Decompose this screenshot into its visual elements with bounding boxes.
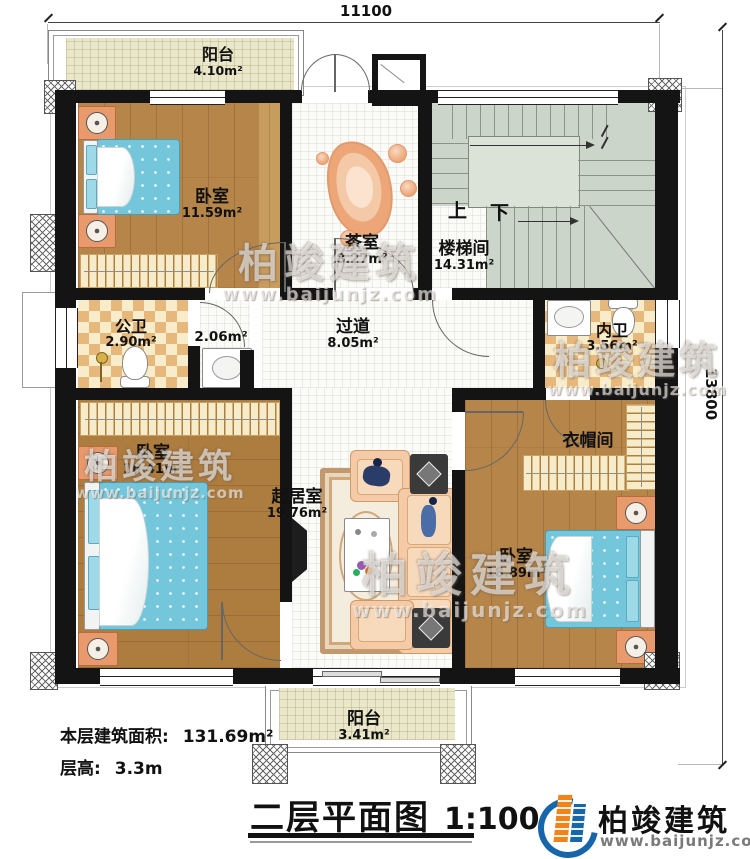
wall-segment	[280, 288, 333, 300]
lamp-icon	[87, 452, 109, 474]
entry-door-arc	[335, 54, 370, 91]
room-name: 内卫	[586, 322, 637, 340]
wall-segment	[620, 668, 680, 684]
table-lamp-icon	[416, 461, 441, 486]
room-area: 8.27m²	[336, 253, 387, 268]
room-name: 卧室	[182, 188, 242, 207]
room-area: 3.56m²	[586, 340, 637, 355]
wall-segment	[465, 388, 546, 400]
side-table	[410, 454, 448, 494]
wardrobe	[626, 404, 656, 490]
wall-segment	[240, 350, 254, 388]
person-body	[421, 505, 436, 537]
room-label-ensuite-bath: 内卫 3.56m²	[586, 322, 637, 354]
lamp-icon	[87, 638, 109, 660]
room-label-stairwell: 楼梯间 14.31m²	[434, 240, 494, 274]
wardrobe-rod	[85, 419, 275, 420]
rug-dot	[388, 144, 407, 163]
bench-wardrobe	[80, 254, 218, 288]
rug-dot	[316, 152, 329, 165]
stair-direction-line	[518, 221, 572, 222]
floor-plan-canvas: 11100 13800 阳台 4.10m² 上 下	[0, 0, 750, 859]
wall-segment	[368, 90, 438, 103]
wall-segment	[440, 668, 515, 684]
stair-down-label: 下	[490, 198, 509, 225]
wardrobe-rod	[641, 407, 642, 488]
extension-line	[678, 764, 722, 765]
floor-drain	[96, 352, 108, 364]
room-area: 14.31m²	[434, 259, 494, 274]
wall-segment	[452, 388, 465, 412]
side-table	[412, 608, 450, 648]
coffee-table	[344, 518, 390, 592]
floor-area-value: 131.69m²	[183, 727, 274, 747]
stair-treads-upper	[452, 103, 620, 139]
entry-door-arc	[301, 54, 336, 91]
door-leaf	[221, 602, 223, 660]
wall-segment	[55, 90, 76, 308]
room-label-balcony-top: 阳台 4.10m²	[193, 46, 242, 78]
wall-segment	[655, 348, 678, 684]
room-label-living-room: 起居室 19.76m²	[267, 488, 327, 522]
flowers	[353, 569, 360, 576]
toilet-bowl	[122, 346, 148, 380]
room-name: 衣帽间	[563, 432, 614, 451]
stair-arrow-down	[570, 217, 579, 225]
nightstand	[78, 446, 118, 480]
wardrobe-rod	[526, 473, 627, 474]
title-underline	[248, 833, 474, 838]
wall-segment	[452, 288, 655, 300]
right-dimension-label: 13800	[702, 368, 720, 438]
window	[515, 668, 620, 686]
room-label-bedroom-left: 卧室 16.41m²	[123, 444, 183, 478]
room-area: 19.76m²	[267, 507, 327, 522]
room-area: 16.41m²	[123, 463, 183, 478]
room-name: 阳台	[338, 710, 389, 729]
room-name: 公卫	[105, 318, 156, 336]
room-area: 2.90m²	[105, 336, 156, 351]
sink-basin	[212, 356, 242, 380]
logo-site-text: www.baijunjz.com	[600, 832, 750, 850]
room-name: 茶室	[336, 234, 387, 253]
wardrobe-rod	[84, 271, 215, 272]
sliding-door-panel	[380, 677, 440, 683]
window	[438, 90, 618, 105]
room-label-balcony-bottom: 阳台 3.41m²	[338, 710, 389, 744]
bed-pillow	[626, 580, 639, 622]
entry-door-leaf	[334, 54, 336, 92]
nightstand	[616, 496, 656, 530]
room-area: 4.10m²	[193, 64, 242, 78]
nightstand	[78, 106, 116, 140]
wall-segment	[233, 668, 313, 684]
lamp-icon	[625, 502, 647, 524]
bed-blanket	[97, 147, 135, 207]
drawing-scale: 1:100	[444, 802, 540, 837]
rug-dot	[400, 180, 417, 197]
window	[655, 300, 680, 348]
wall-segment	[55, 668, 100, 684]
table-item	[355, 529, 361, 535]
window	[150, 90, 225, 105]
stair-landing	[468, 136, 580, 208]
wall-segment	[418, 103, 432, 300]
armchair	[350, 600, 414, 650]
nightstand	[78, 214, 116, 248]
room-name: 楼梯间	[434, 240, 494, 259]
floor-drain	[596, 358, 607, 369]
wall-segment	[655, 90, 678, 300]
door-leaf	[465, 411, 523, 413]
drawing-title-block: 二层平面图 1:100	[250, 790, 540, 839]
extension-line	[47, 24, 48, 64]
room-name: 卧室	[486, 548, 546, 567]
lamp-icon	[86, 112, 108, 134]
floor-area-line: 本层建筑面积: 131.69m²	[60, 722, 274, 747]
wardrobe	[523, 455, 630, 491]
room-name: 过道	[327, 318, 378, 337]
floor-area-label: 本层建筑面积:	[60, 727, 169, 747]
nightstand	[78, 632, 118, 666]
room-label-bedroom-top: 卧室 11.59m²	[182, 188, 242, 222]
wall-segment	[55, 388, 280, 400]
balcony-top-floor	[66, 38, 294, 90]
wall-segment	[55, 368, 76, 684]
table-item	[371, 531, 377, 537]
wall-segment	[188, 346, 200, 388]
title-underline-thin	[250, 841, 472, 843]
wall-segment	[55, 288, 205, 300]
room-label-public-bath: 公卫 2.90m²	[105, 318, 156, 350]
room-label-cloakroom: 衣帽间	[563, 432, 614, 451]
top-dimension-line	[48, 22, 660, 23]
wall-segment	[452, 470, 465, 668]
stair-direction-line	[470, 145, 588, 146]
stair-treads-left	[432, 140, 468, 204]
stair-arrow-up	[586, 141, 595, 149]
flowers	[365, 567, 373, 575]
bed-blanket	[99, 498, 149, 626]
drawing-title: 二层平面图	[250, 790, 430, 839]
room-label-tea-room: 茶室 8.27m²	[336, 234, 387, 268]
sofa-cushion	[407, 547, 451, 597]
sliding-door-panel	[322, 671, 382, 677]
floor-hallway	[262, 300, 533, 388]
room-name: 起居室	[267, 488, 327, 507]
room-label-bedroom-right: 卧室 18.89m²	[486, 548, 546, 582]
room-area: 3.41m²	[338, 729, 389, 744]
bed-pillow	[626, 536, 639, 578]
bed-pillow	[86, 179, 97, 209]
top-dimension-label: 11100	[326, 2, 406, 20]
bed-headboard	[640, 530, 655, 628]
lamp-icon	[86, 220, 108, 242]
window	[100, 668, 233, 686]
hatch-column	[30, 214, 58, 272]
door-leaf	[284, 242, 286, 292]
room-label-wash-nook: 2.06m²	[194, 330, 247, 345]
floor-height-value: 3.3m	[115, 759, 163, 779]
wall-segment	[533, 300, 545, 388]
room-name: 卧室	[123, 444, 183, 463]
hatch-column	[252, 744, 288, 784]
person-head	[429, 497, 437, 505]
wardrobe	[80, 402, 280, 436]
floor-height-label: 层高:	[60, 759, 101, 779]
room-area: 18.89m²	[486, 567, 546, 582]
room-area: 11.59m²	[182, 207, 242, 222]
floor-height-line: 层高: 3.3m	[60, 754, 163, 779]
room-area: 2.06m²	[194, 330, 247, 345]
dimension-tick	[718, 760, 727, 769]
hatch-column	[30, 652, 58, 690]
wall-segment	[590, 388, 655, 400]
room-label-hallway: 过道 8.05m²	[327, 318, 378, 352]
right-dimension-line	[722, 30, 723, 766]
stair-treads-right	[578, 146, 655, 206]
sink-basin	[554, 306, 584, 328]
floor-drain-stem	[100, 362, 102, 382]
window	[55, 308, 78, 368]
room-name: 阳台	[193, 46, 242, 64]
window-bay	[22, 292, 58, 388]
room-area: 8.05m²	[327, 337, 378, 352]
table-lamp-icon	[418, 615, 443, 640]
hatch-column	[440, 744, 476, 784]
bed-pillow	[86, 145, 97, 175]
bed-blanket	[546, 536, 592, 622]
wall-segment	[225, 90, 302, 103]
stair-up-label: 上	[448, 196, 467, 223]
